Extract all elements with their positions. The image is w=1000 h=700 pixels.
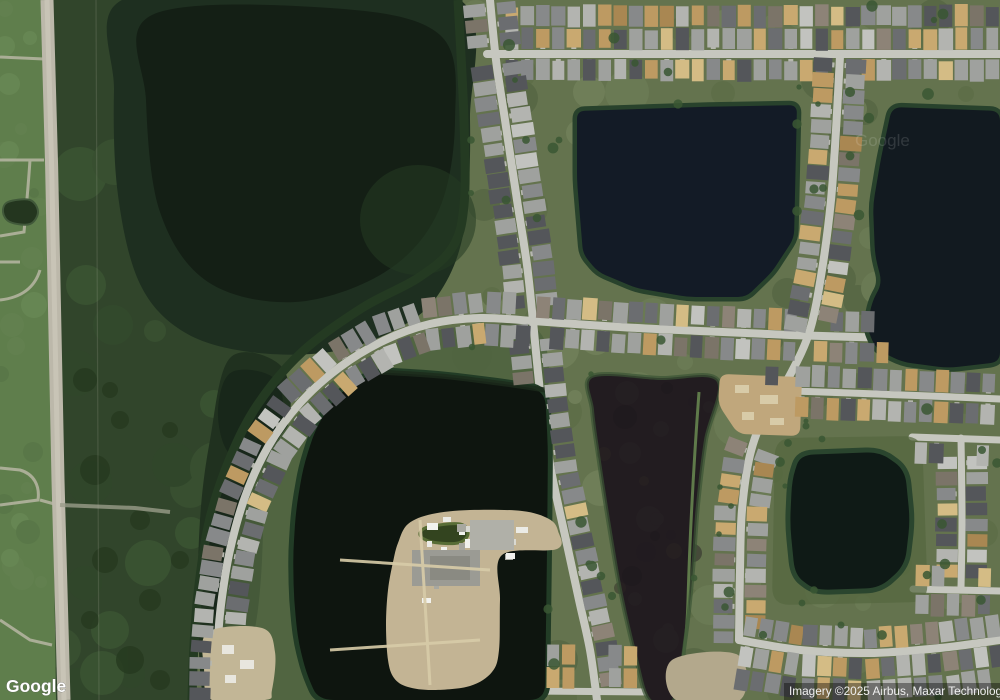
svg-text:Imagery ©2025 Airbus, Maxar Te: Imagery ©2025 Airbus, Maxar Technologies <box>789 684 1000 698</box>
svg-text:Google: Google <box>6 676 67 696</box>
svg-text:Google: Google <box>855 131 910 150</box>
